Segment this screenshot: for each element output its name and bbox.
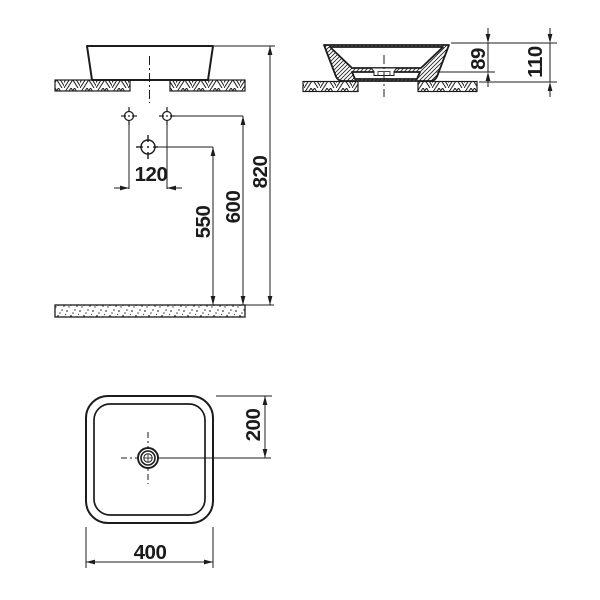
arrow — [211, 296, 216, 305]
dim-label-89: 89 — [467, 48, 490, 70]
arrow — [268, 46, 273, 55]
countertop-left-section — [55, 80, 130, 91]
arrow — [211, 147, 216, 156]
countertop-right-section-side — [418, 82, 477, 92]
dim-label-600: 600 — [222, 191, 245, 224]
drain-hole-front — [136, 135, 158, 159]
dim-label-120: 120 — [135, 163, 168, 186]
dim-label-200: 200 — [242, 409, 265, 442]
arrow — [167, 186, 176, 191]
arrow — [241, 296, 246, 305]
arrow — [241, 116, 246, 125]
arrow — [486, 72, 491, 81]
dim-label-110: 110 — [524, 46, 547, 78]
arrow — [263, 396, 268, 405]
arrow — [548, 82, 553, 91]
drain-plan — [138, 448, 158, 468]
floor-hatch — [55, 305, 245, 317]
arrow — [263, 449, 268, 458]
dim-label-550: 550 — [192, 206, 215, 239]
arrow — [204, 560, 213, 565]
arrow — [268, 296, 273, 305]
dim-label-820: 820 — [249, 156, 272, 189]
countertop-right-section — [170, 80, 245, 91]
dim-label-400: 400 — [134, 541, 167, 564]
plan-view: 200 400 — [86, 396, 272, 568]
arrow — [86, 560, 95, 565]
countertop-left-section-side — [303, 82, 358, 92]
tap-hole-left — [121, 107, 137, 125]
arrow — [548, 34, 553, 43]
side-view: 89 110 — [303, 28, 557, 97]
arrow — [486, 34, 491, 43]
technical-drawing: 120 550 600 820 — [0, 0, 600, 600]
washbasin-technical-drawing-page: 120 550 600 820 — [0, 0, 600, 600]
front-view: 120 550 600 820 — [55, 46, 275, 317]
arrow — [120, 186, 129, 191]
